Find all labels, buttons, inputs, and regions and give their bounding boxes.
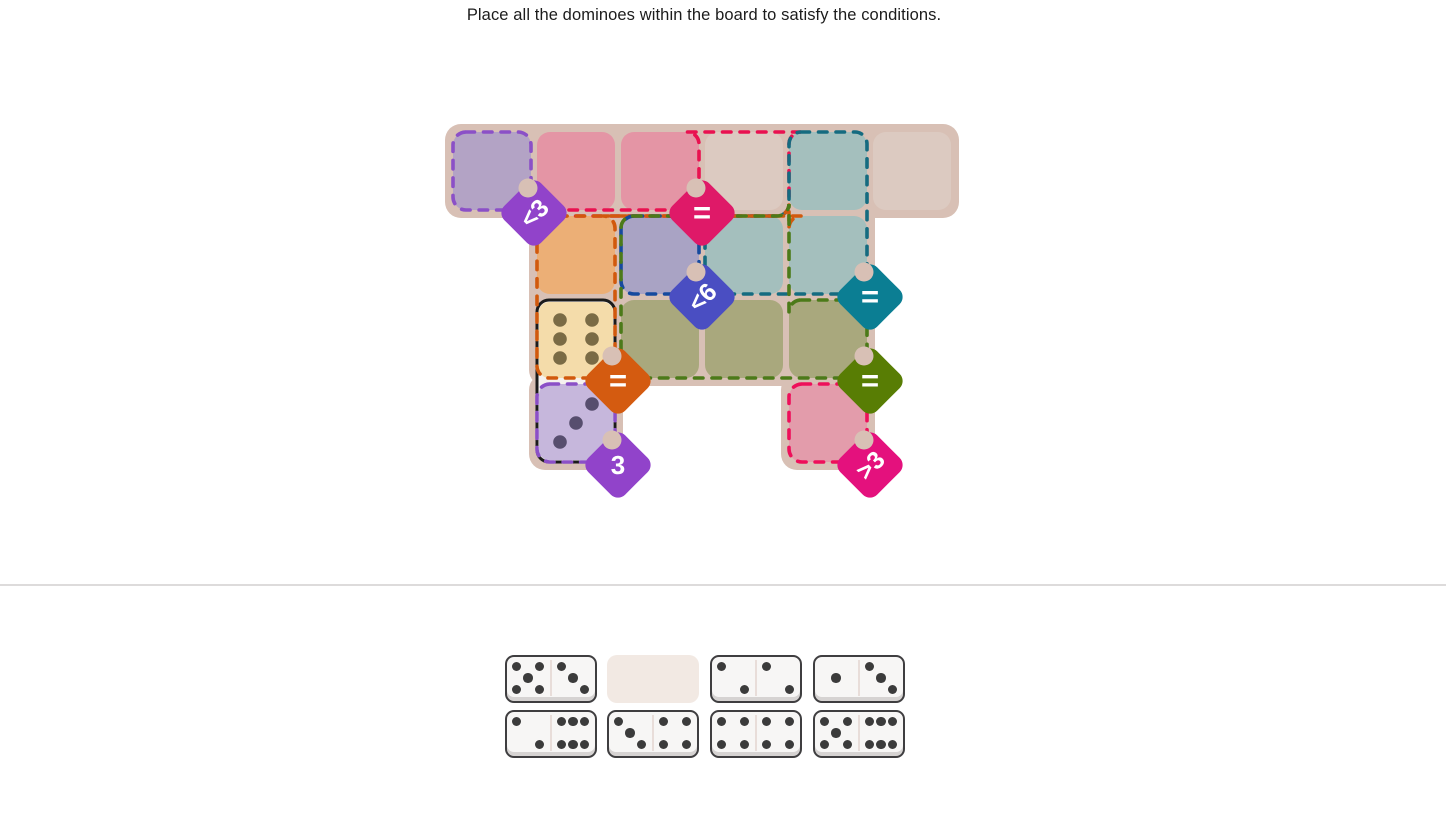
pip <box>831 728 840 737</box>
pip <box>568 673 577 682</box>
pip <box>740 717 749 726</box>
pip <box>682 740 691 749</box>
tray-domino-1-3[interactable] <box>813 655 905 703</box>
pip <box>557 717 566 726</box>
pip <box>820 740 829 749</box>
pip <box>568 740 577 749</box>
pip <box>637 740 646 749</box>
pip <box>717 717 726 726</box>
pip <box>625 728 634 737</box>
tray-slot-empty <box>607 655 699 703</box>
pip <box>535 685 544 694</box>
pip <box>785 740 794 749</box>
pip <box>717 662 726 671</box>
pip <box>682 717 691 726</box>
tray-domino-4-4[interactable] <box>710 710 802 758</box>
pip <box>762 717 771 726</box>
domino-divider <box>858 715 860 751</box>
pip <box>831 673 840 682</box>
pip <box>740 685 749 694</box>
pip <box>557 740 566 749</box>
pip <box>888 685 897 694</box>
pip <box>762 662 771 671</box>
pip <box>865 740 874 749</box>
domino-tray <box>0 0 1446 822</box>
pip <box>659 717 668 726</box>
pip <box>876 717 885 726</box>
pip <box>717 740 726 749</box>
pip <box>512 717 521 726</box>
domino-divider <box>858 660 860 696</box>
pip <box>876 740 885 749</box>
pip <box>523 673 532 682</box>
domino-divider <box>755 715 757 751</box>
pip <box>512 685 521 694</box>
pip <box>568 717 577 726</box>
pip <box>785 717 794 726</box>
pip <box>888 717 897 726</box>
pip <box>535 662 544 671</box>
pip <box>865 662 874 671</box>
pip <box>762 740 771 749</box>
tray-domino-2-2[interactable] <box>710 655 802 703</box>
pip <box>865 717 874 726</box>
pip <box>580 685 589 694</box>
pip <box>580 740 589 749</box>
pip <box>512 662 521 671</box>
tray-domino-5-3[interactable] <box>505 655 597 703</box>
pip <box>843 740 852 749</box>
pip <box>843 717 852 726</box>
domino-divider <box>550 660 552 696</box>
pip <box>580 717 589 726</box>
tray-domino-2-6[interactable] <box>505 710 597 758</box>
tray-domino-3-4[interactable] <box>607 710 699 758</box>
pip <box>659 740 668 749</box>
page: Place all the dominoes within the board … <box>0 0 1446 822</box>
domino-divider <box>550 715 552 751</box>
pip <box>888 740 897 749</box>
pip <box>876 673 885 682</box>
domino-divider <box>755 660 757 696</box>
domino-divider <box>652 715 654 751</box>
pip <box>740 740 749 749</box>
pip <box>557 662 566 671</box>
tray-domino-5-6[interactable] <box>813 710 905 758</box>
pip <box>820 717 829 726</box>
pip <box>535 740 544 749</box>
pip <box>614 717 623 726</box>
pip <box>785 685 794 694</box>
